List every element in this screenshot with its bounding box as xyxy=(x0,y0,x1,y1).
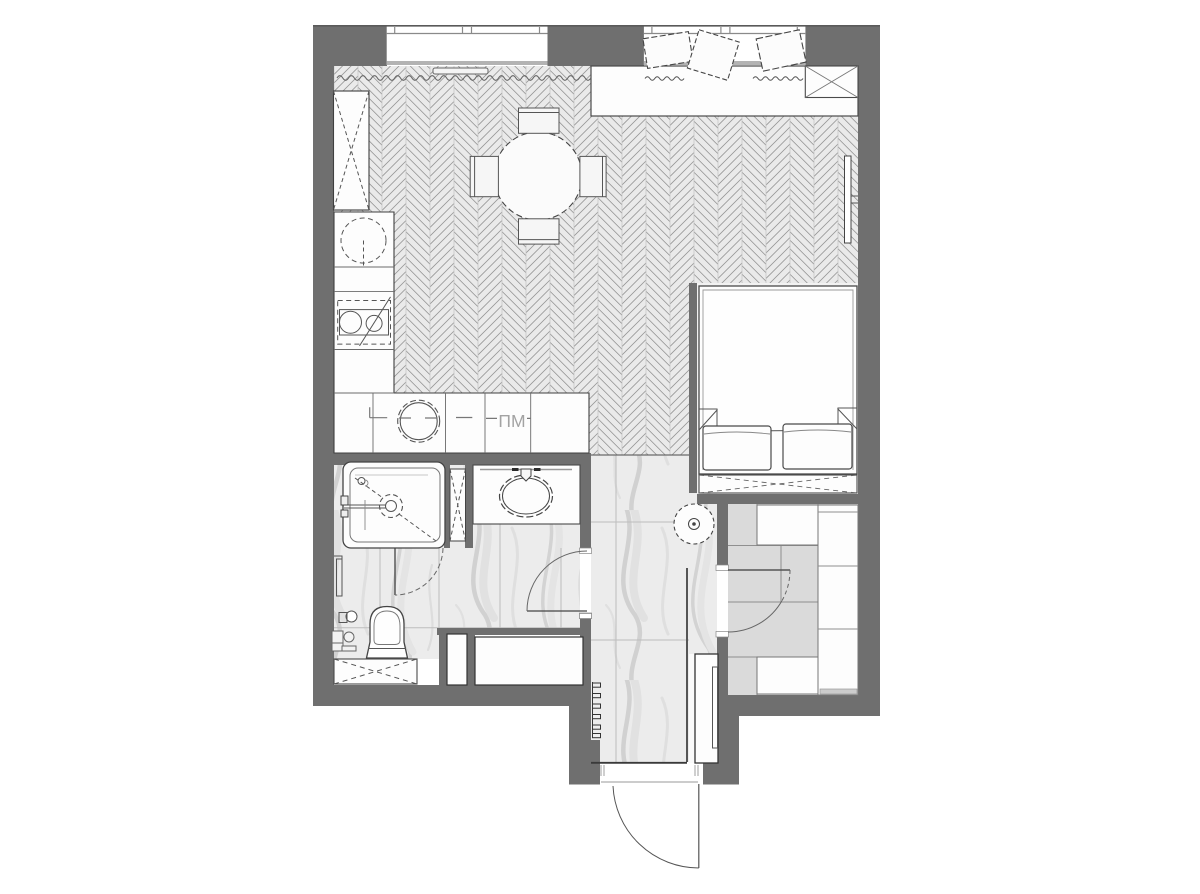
svg-text:ПМ: ПМ xyxy=(498,411,525,431)
